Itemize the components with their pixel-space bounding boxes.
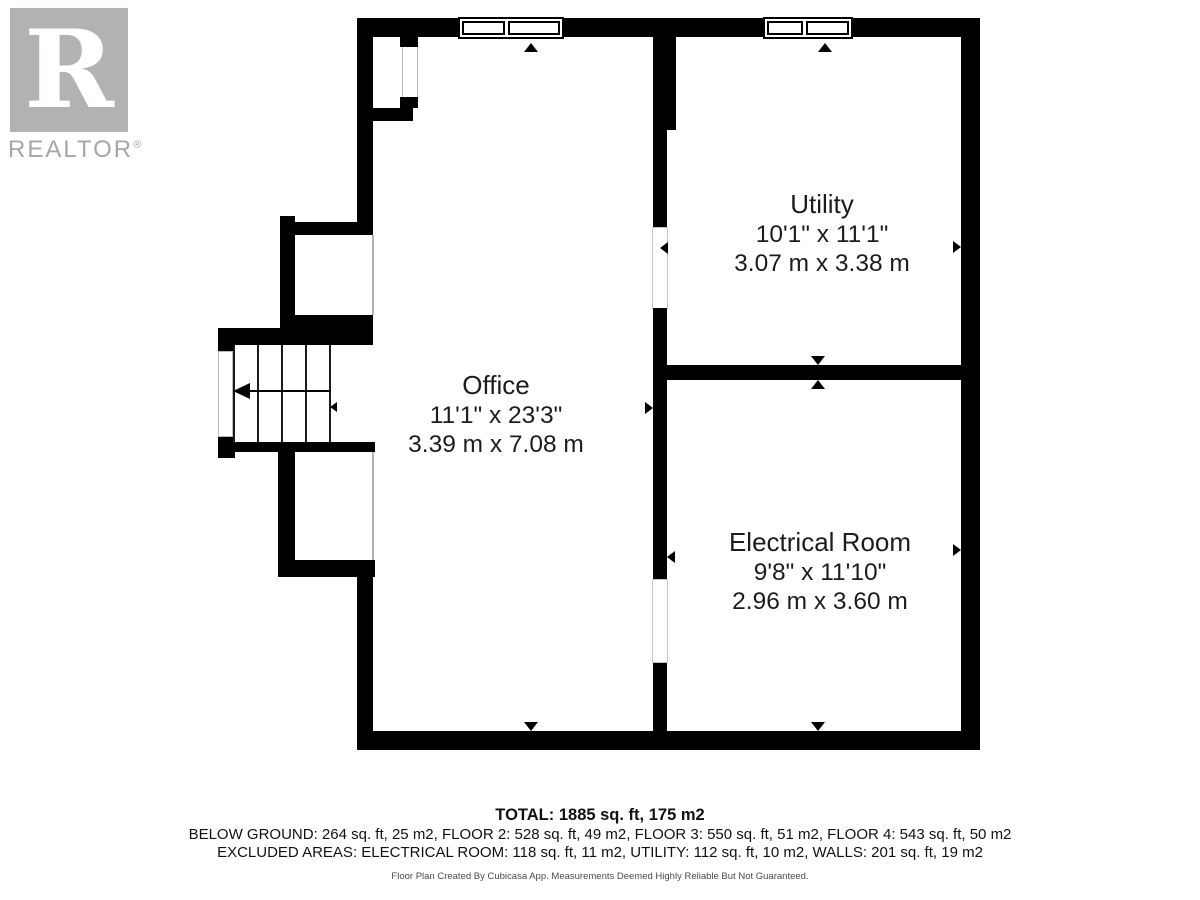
door-opening-office-electrical — [652, 579, 668, 663]
summary-disclaimer: Floor Plan Created By Cubicasa App. Meas… — [0, 871, 1200, 882]
room-dimensions-metric: 2.96 m x 3.60 m — [690, 587, 950, 616]
stairs-entry-marker-icon — [330, 402, 337, 412]
dimension-marker-icon — [811, 722, 825, 731]
stair-tread — [283, 345, 307, 442]
floor-plan-page: R REALTOR® — [0, 0, 1200, 900]
stairs-direction-arrow-shaft — [249, 390, 331, 392]
nook-opening — [402, 47, 418, 97]
wall-office-left-lower — [357, 563, 373, 731]
room-dimensions-metric: 3.39 m x 7.08 m — [366, 430, 626, 459]
dimension-marker-icon — [811, 380, 825, 389]
dimension-marker-icon — [811, 356, 825, 365]
window-pane — [767, 21, 803, 35]
wall-nook-stub-bottom — [400, 97, 418, 108]
room-dimensions-imperial: 10'1" x 11'1" — [692, 220, 952, 249]
wall-top — [357, 18, 980, 37]
realtor-logo-icon: R — [10, 8, 128, 132]
wall-middle-upper-wide — [667, 37, 676, 130]
realtor-logo-letter: R — [24, 16, 114, 124]
registered-trademark-icon: ® — [133, 139, 141, 151]
realtor-word: REALTOR — [8, 136, 133, 163]
room-name: Office — [366, 369, 626, 401]
window-2 — [763, 17, 853, 39]
wall-bottom — [357, 731, 980, 750]
wall-utility-electrical — [653, 365, 975, 380]
summary-total: TOTAL: 1885 sq. ft, 175 m2 — [0, 806, 1200, 825]
wall-alcove2-left — [278, 452, 295, 575]
dimension-marker-icon — [524, 43, 538, 52]
summary-floors: BELOW GROUND: 264 sq. ft, 25 m2, FLOOR 2… — [0, 826, 1200, 843]
stairs-direction-arrow-icon — [233, 383, 250, 399]
room-label-utility: Utility 10'1" x 11'1" 3.07 m x 3.38 m — [692, 188, 952, 278]
wall-stairs-top — [218, 328, 373, 345]
wall-right — [961, 18, 980, 750]
room-label-electrical: Electrical Room 9'8" x 11'10" 2.96 m x 3… — [690, 526, 950, 616]
room-label-office: Office 11'1" x 23'3" 3.39 m x 7.08 m — [366, 369, 626, 459]
window-pane — [462, 21, 505, 35]
summary-excluded-areas: EXCLUDED AREAS: ELECTRICAL ROOM: 118 sq.… — [0, 844, 1200, 861]
wall-stairs-bottom — [218, 442, 375, 452]
alcove2-opening-line — [372, 452, 374, 560]
window-pane — [806, 21, 849, 35]
stairs-left-opening — [218, 351, 233, 437]
wall-nook-bottom — [373, 108, 413, 121]
room-name: Electrical Room — [690, 526, 950, 558]
room-dimensions-imperial: 11'1" x 23'3" — [366, 401, 626, 430]
dimension-marker-icon — [667, 551, 675, 563]
dimension-marker-icon — [524, 722, 538, 731]
wall-middle-mid — [653, 308, 667, 580]
door-opening-office-utility — [652, 227, 668, 309]
dimension-marker-icon — [645, 402, 653, 414]
window-1 — [458, 17, 564, 39]
dimension-marker-icon — [953, 544, 961, 556]
dimension-marker-icon — [953, 241, 961, 253]
door-marker-icon — [660, 242, 668, 254]
realtor-logo-wordmark: REALTOR® — [8, 132, 158, 163]
alcove1-opening-line — [372, 235, 374, 315]
wall-middle-lower — [653, 663, 667, 731]
wall-alcove2-bottom — [278, 560, 375, 577]
wall-alcove1-top — [280, 222, 373, 235]
dimension-marker-icon — [818, 43, 832, 52]
room-name: Utility — [692, 188, 952, 220]
wall-middle-upper — [653, 37, 667, 228]
room-dimensions-metric: 3.07 m x 3.38 m — [692, 249, 952, 278]
window-pane — [508, 21, 560, 35]
room-dimensions-imperial: 9'8" x 11'10" — [690, 558, 950, 587]
wall-office-left-upper — [357, 18, 373, 235]
stair-tread — [259, 345, 283, 442]
wall-nook-stub-top — [400, 33, 418, 47]
stair-tread — [307, 345, 329, 442]
